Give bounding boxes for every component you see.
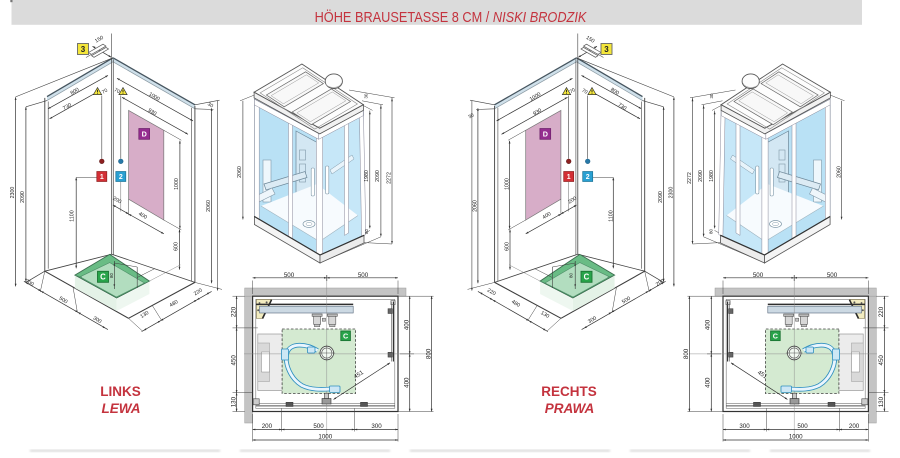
svg-text:C: C [773,331,778,340]
svg-text:200: 200 [849,423,860,430]
svg-text:2060: 2060 [237,166,243,178]
svg-text:400: 400 [404,319,411,330]
svg-text:1000: 1000 [318,434,332,441]
svg-text:500: 500 [827,272,838,279]
svg-text:2090: 2090 [698,170,704,182]
svg-text:RECHTS: RECHTS [541,384,597,399]
svg-text:450: 450 [878,355,885,366]
svg-text:30: 30 [709,93,714,98]
svg-text:2060: 2060 [206,200,212,212]
svg-text:2090: 2090 [20,191,26,203]
svg-text:30: 30 [364,93,369,98]
svg-text:2272: 2272 [386,172,392,184]
svg-text:HÖHE BRAUSETASSE 8 CM / NISKI: HÖHE BRAUSETASSE 8 CM / NISKI BRODZIK [315,7,587,25]
svg-text:400: 400 [404,377,411,388]
svg-text:1000: 1000 [174,178,180,190]
svg-text:2090: 2090 [375,170,381,182]
svg-text:D: D [142,130,147,139]
svg-text:2060: 2060 [473,200,479,212]
svg-text:C: C [343,331,348,340]
svg-text:80: 80 [709,229,714,234]
svg-text:2300: 2300 [10,187,16,199]
svg-text:450: 450 [230,355,237,366]
svg-text:1000: 1000 [789,434,803,441]
svg-text:LINKS: LINKS [100,384,141,399]
svg-text:1: 1 [567,174,571,181]
svg-text:500: 500 [313,423,324,430]
svg-text:80: 80 [569,273,574,278]
svg-text:2090: 2090 [658,191,664,203]
svg-text:1980: 1980 [709,170,715,182]
svg-text:300: 300 [739,423,750,430]
svg-text:D: D [543,130,548,139]
svg-text:600: 600 [505,242,511,251]
svg-text:C: C [100,273,106,282]
svg-text:80: 80 [109,273,114,278]
svg-text:130: 130 [878,396,885,407]
svg-text:220: 220 [878,306,885,317]
svg-text:2272: 2272 [687,172,693,184]
svg-text:1: 1 [100,174,104,181]
svg-text:800: 800 [683,348,690,359]
svg-text:PRAWA: PRAWA [545,401,595,416]
svg-text:400: 400 [705,319,712,330]
svg-text:130: 130 [230,396,237,407]
svg-text:300: 300 [371,423,382,430]
svg-text:C: C [584,273,590,282]
svg-text:1000: 1000 [504,178,510,190]
svg-text:500: 500 [358,272,369,279]
svg-text:80: 80 [364,229,369,234]
svg-text:500: 500 [284,272,295,279]
svg-text:1100: 1100 [70,210,76,221]
svg-text:3: 3 [604,45,609,54]
svg-text:LEWA: LEWA [102,401,141,416]
svg-text:2: 2 [586,174,590,181]
svg-text:220: 220 [230,306,237,317]
svg-text:1100: 1100 [609,210,615,221]
svg-text:500: 500 [753,272,764,279]
svg-text:600: 600 [174,242,180,251]
svg-text:500: 500 [797,423,808,430]
svg-text:2: 2 [119,174,123,181]
svg-text:2300: 2300 [668,187,674,199]
svg-text:3: 3 [81,45,86,54]
svg-text:1980: 1980 [364,170,370,182]
svg-text:2060: 2060 [836,166,842,178]
svg-text:800: 800 [426,348,433,359]
svg-text:200: 200 [262,423,273,430]
svg-text:400: 400 [705,377,712,388]
